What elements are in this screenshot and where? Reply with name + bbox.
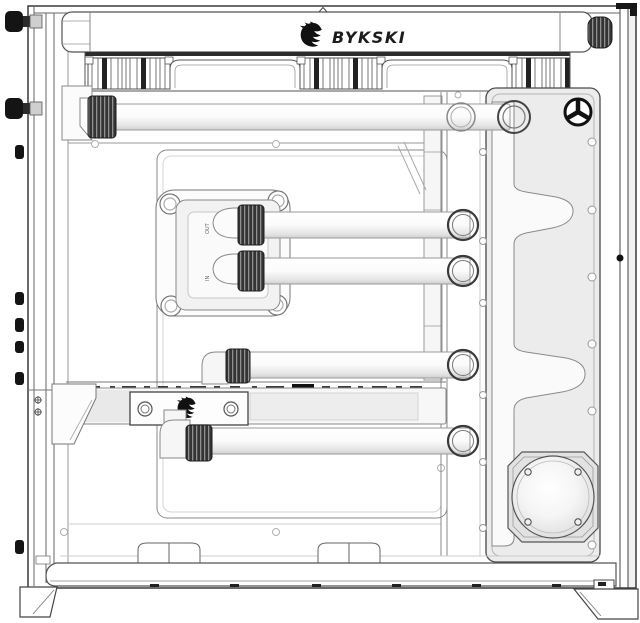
motherboard-tray bbox=[61, 92, 481, 556]
radiator-fan-gasket bbox=[85, 52, 570, 56]
gpu-bracket bbox=[28, 384, 96, 444]
fan-corner-slats bbox=[297, 57, 385, 89]
pump-dome bbox=[512, 456, 594, 538]
front-edge-clips bbox=[15, 145, 24, 554]
fan-row bbox=[85, 52, 597, 89]
rear-wall-screw bbox=[617, 255, 624, 262]
compression-collar bbox=[226, 349, 250, 383]
watercooling-build-diagram: BYKSKI bbox=[0, 0, 640, 623]
hard-tube-2 bbox=[262, 212, 470, 238]
right-wall-shade bbox=[628, 6, 636, 588]
hard-tube-3 bbox=[262, 258, 470, 284]
fill-port-plug bbox=[565, 99, 591, 125]
cpu-water-block: OUT IN bbox=[156, 190, 290, 316]
base-rail bbox=[46, 563, 616, 586]
radiator: BYKSKI bbox=[62, 12, 612, 52]
bracket-screw-marks bbox=[34, 396, 42, 416]
diagram-canvas: BYKSKI bbox=[0, 0, 640, 623]
case-foot-left bbox=[20, 587, 57, 617]
gpu-elbow-fitting-top bbox=[202, 352, 228, 384]
fan-corner-slats bbox=[85, 57, 173, 89]
cpu-port-label-bottom: IN bbox=[205, 276, 211, 281]
top-right-corner-bracket bbox=[616, 3, 637, 16]
thumbscrew-mid bbox=[5, 98, 42, 119]
case-foot-right bbox=[574, 589, 638, 619]
radiator-tank bbox=[62, 12, 592, 52]
pass-through-wall bbox=[441, 92, 480, 556]
hard-tube-5 bbox=[208, 428, 470, 454]
pump bbox=[508, 452, 598, 542]
compression-collar bbox=[88, 96, 116, 138]
compression-collar bbox=[238, 251, 264, 291]
thumbscrew-top bbox=[5, 11, 42, 32]
radiator-brand-text: BYKSKI bbox=[332, 28, 406, 47]
fan-arch bbox=[382, 60, 512, 88]
gpu-acrylic-top bbox=[250, 393, 418, 420]
compression-collar bbox=[186, 425, 212, 461]
compression-collar bbox=[238, 205, 264, 245]
fan-corner-slats bbox=[509, 57, 597, 89]
fan-arch bbox=[170, 60, 300, 88]
hard-tube-4 bbox=[244, 352, 470, 378]
cpu-port-label-top: OUT bbox=[205, 222, 211, 234]
radiator-end-plug bbox=[588, 17, 612, 48]
rear-wall-rails bbox=[620, 6, 628, 588]
